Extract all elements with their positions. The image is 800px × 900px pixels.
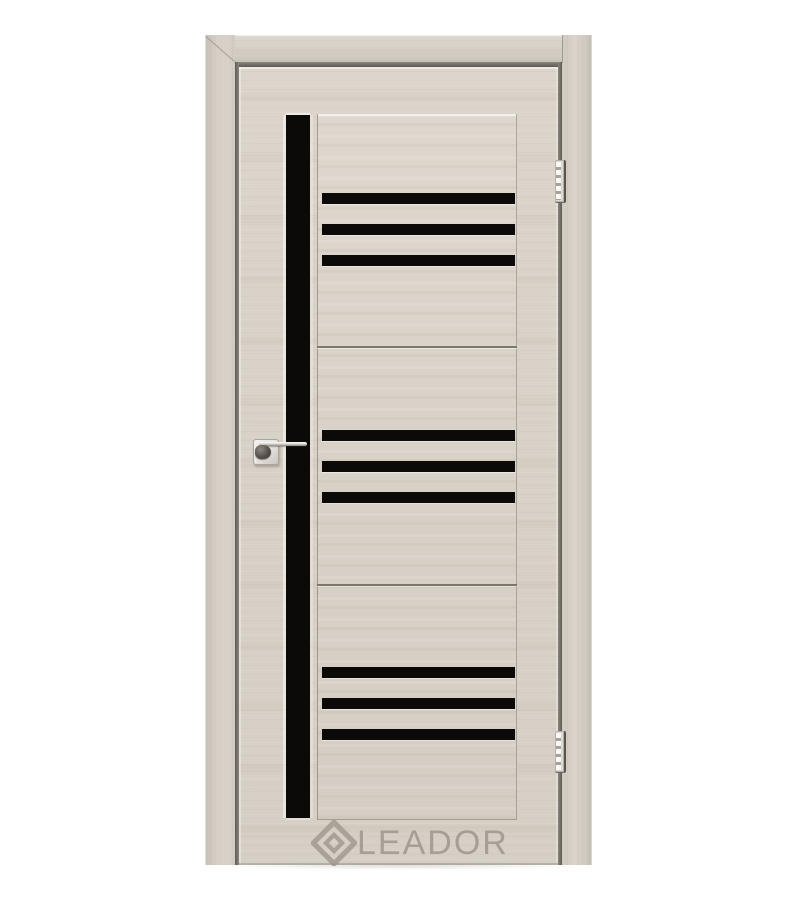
woodgrain-texture: [562, 35, 592, 865]
floor-shadow: [208, 863, 590, 869]
door-casing-top: [205, 35, 592, 63]
hinge-bottom: [555, 731, 566, 773]
hinge-top: [555, 160, 566, 203]
casing-butt-joint: [562, 35, 563, 63]
brand-watermark: LEADOR: [239, 67, 558, 863]
door-casing-right: [562, 35, 592, 865]
door-casing-left: [205, 35, 235, 865]
diamond-logo-icon: [311, 820, 357, 866]
door-leaf: LEADOR: [239, 67, 558, 865]
woodgrain-texture: [205, 35, 235, 865]
door-product-photo: LEADOR: [0, 0, 800, 900]
brand-text: LEADOR: [357, 825, 509, 861]
woodgrain-texture: [205, 35, 592, 63]
